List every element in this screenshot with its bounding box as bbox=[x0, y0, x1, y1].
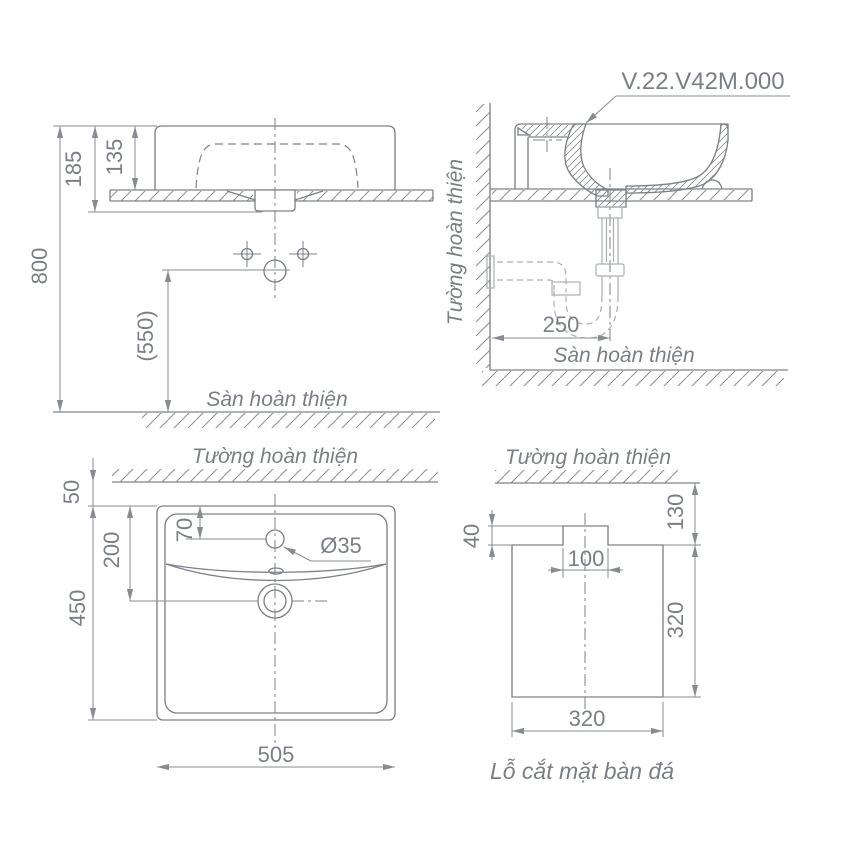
dim-text-faucet-hole: Ø35 bbox=[320, 533, 362, 558]
cutout-wall-label: Tường hoàn thiện bbox=[505, 446, 671, 469]
plan-view: Tường hoàn thiện 50 450 200 70 Ø35 505 bbox=[59, 445, 438, 767]
basin-back-wall-section bbox=[565, 124, 608, 196]
faucet-leader-line bbox=[284, 547, 311, 561]
front-view: 800 185 135 (550) Sàn hoàn thiện bbox=[27, 118, 440, 428]
dim-text-185: 185 bbox=[61, 151, 86, 188]
cutout-texts: Tường hoàn thiện 40 130 320 100 320 Lỗ c… bbox=[459, 446, 688, 784]
floor-hatch bbox=[142, 413, 435, 428]
wall-hatch bbox=[112, 469, 438, 482]
side-floor-label: Sàn hoàn thiện bbox=[553, 344, 694, 367]
product-code: V.22.V42M.000 bbox=[621, 68, 784, 95]
dim-text-135: 135 bbox=[102, 139, 127, 176]
dim-text-130: 130 bbox=[663, 494, 688, 531]
front-dimensions bbox=[53, 126, 290, 412]
dim-text-450: 450 bbox=[65, 590, 90, 627]
dim-text-550: (550) bbox=[133, 310, 158, 361]
dim-text-320-vertical: 320 bbox=[663, 602, 688, 639]
drain-fitting bbox=[596, 190, 626, 207]
basin-hidden-outline bbox=[196, 144, 358, 188]
counter-hatch-left bbox=[492, 190, 594, 200]
leader-line bbox=[586, 96, 616, 123]
wall-hatch bbox=[476, 104, 490, 368]
floor-hatch bbox=[482, 371, 784, 386]
dim-text-505: 505 bbox=[258, 742, 295, 767]
dim-text-250: 250 bbox=[543, 312, 580, 337]
wall-hatch bbox=[495, 470, 678, 483]
cutout-view: Tường hoàn thiện 40 130 320 100 320 Lỗ c… bbox=[459, 446, 701, 784]
side-wall-label: Tường hoàn thiện bbox=[444, 159, 467, 325]
dim-text-320-horizontal: 320 bbox=[569, 706, 606, 731]
dim-text-40: 40 bbox=[459, 524, 484, 548]
basin-front-wall-section bbox=[626, 124, 728, 193]
dim-text-70: 70 bbox=[172, 518, 197, 542]
dim-text-200: 200 bbox=[99, 532, 124, 569]
plan-texts: Tường hoàn thiện 50 450 200 70 Ø35 505 bbox=[59, 445, 362, 767]
overflow-slot bbox=[269, 568, 283, 574]
waste-pipe-top bbox=[497, 262, 566, 290]
front-floor-label: Sàn hoàn thiện bbox=[206, 388, 347, 411]
technical-drawing-sheet: 800 185 135 (550) Sàn hoàn thiện bbox=[0, 0, 850, 850]
dim-text-50: 50 bbox=[59, 480, 84, 504]
waste-pipe-bottom bbox=[497, 280, 554, 290]
plan-wall-label: Tường hoàn thiện bbox=[192, 445, 358, 468]
cutout-caption: Lỗ cắt mặt bàn đá bbox=[490, 757, 674, 784]
plan-geometry bbox=[112, 469, 438, 747]
dim-text-100: 100 bbox=[568, 546, 605, 571]
drawing-canvas: 800 185 135 (550) Sàn hoàn thiện bbox=[0, 0, 850, 850]
side-view: V.22.V42M.000 Tường hoàn thiện 250 Sàn h… bbox=[444, 68, 790, 386]
front-texts: 800 185 135 (550) Sàn hoàn thiện bbox=[27, 139, 348, 411]
dim-text-800: 800 bbox=[27, 248, 52, 285]
